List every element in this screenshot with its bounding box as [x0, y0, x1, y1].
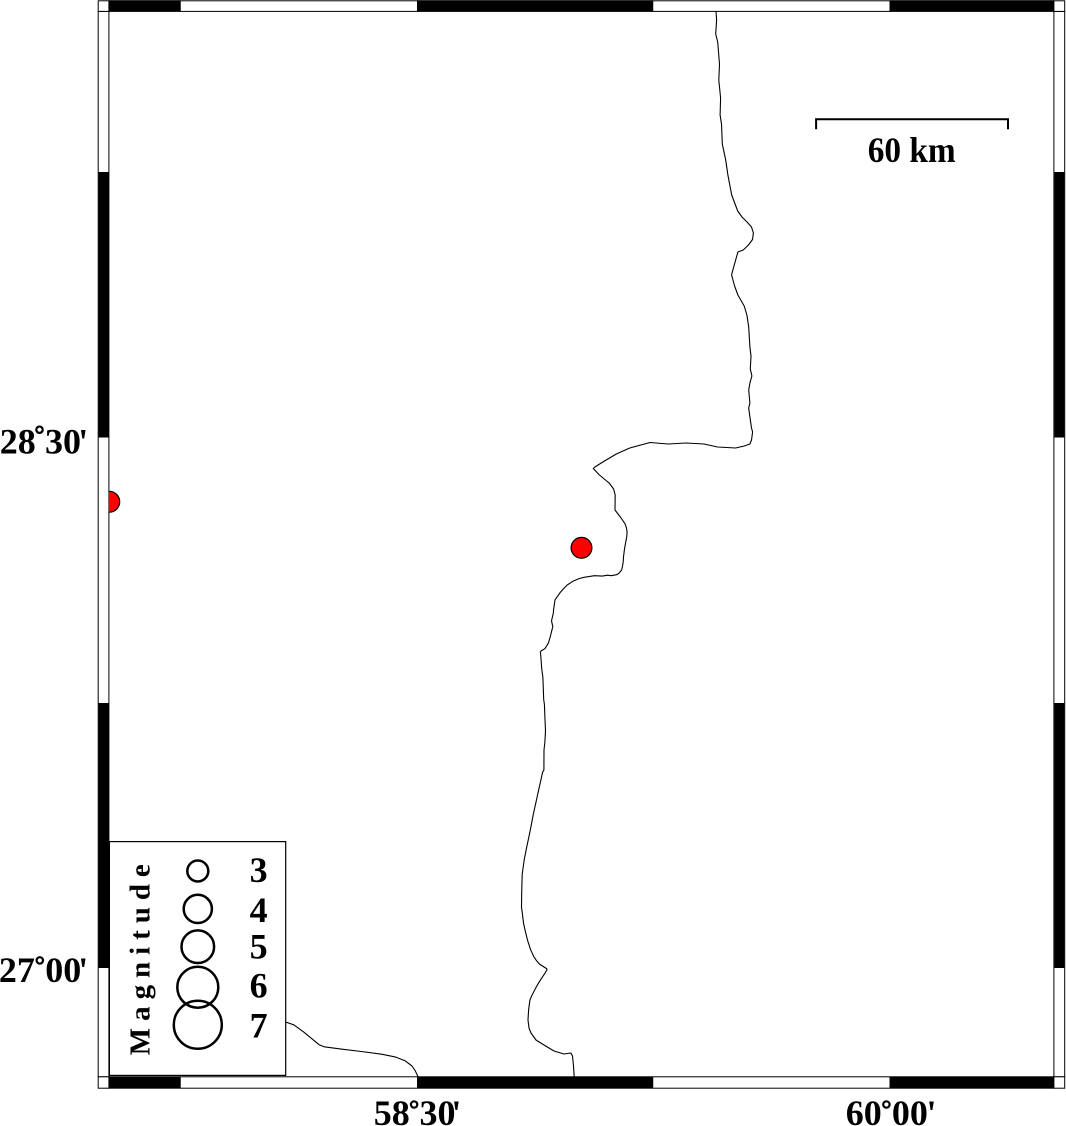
svg-text:': ' — [451, 1093, 461, 1126]
svg-text:4: 4 — [250, 890, 268, 930]
svg-text:M a g n i t u d e: M a g n i t u d e — [125, 864, 157, 1055]
svg-text:58: 58 — [374, 1093, 410, 1126]
svg-text:27: 27 — [0, 950, 35, 990]
svg-text:': ' — [78, 950, 88, 990]
svg-text:00: 00 — [45, 950, 81, 990]
svg-text:5: 5 — [250, 927, 268, 967]
svg-text:30: 30 — [420, 1093, 456, 1126]
svg-text:3: 3 — [250, 850, 268, 890]
svg-text:28: 28 — [0, 422, 36, 462]
svg-text:6: 6 — [250, 966, 268, 1006]
svg-text:60 km: 60 km — [868, 130, 956, 170]
svg-text:60: 60 — [846, 1093, 882, 1126]
svg-text:7: 7 — [250, 1006, 268, 1046]
svg-text:': ' — [78, 422, 88, 462]
svg-text:30: 30 — [45, 422, 81, 462]
svg-text:00: 00 — [892, 1093, 928, 1126]
svg-text:': ' — [926, 1093, 936, 1126]
